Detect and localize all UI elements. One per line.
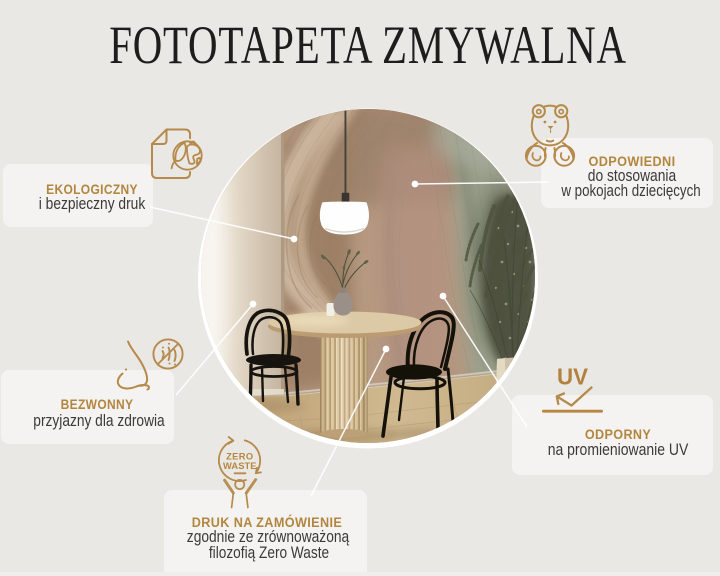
svg-text:UV: UV xyxy=(557,363,588,389)
svg-text:ZERO: ZERO xyxy=(226,451,253,461)
svg-text:WASTE: WASTE xyxy=(223,461,257,471)
